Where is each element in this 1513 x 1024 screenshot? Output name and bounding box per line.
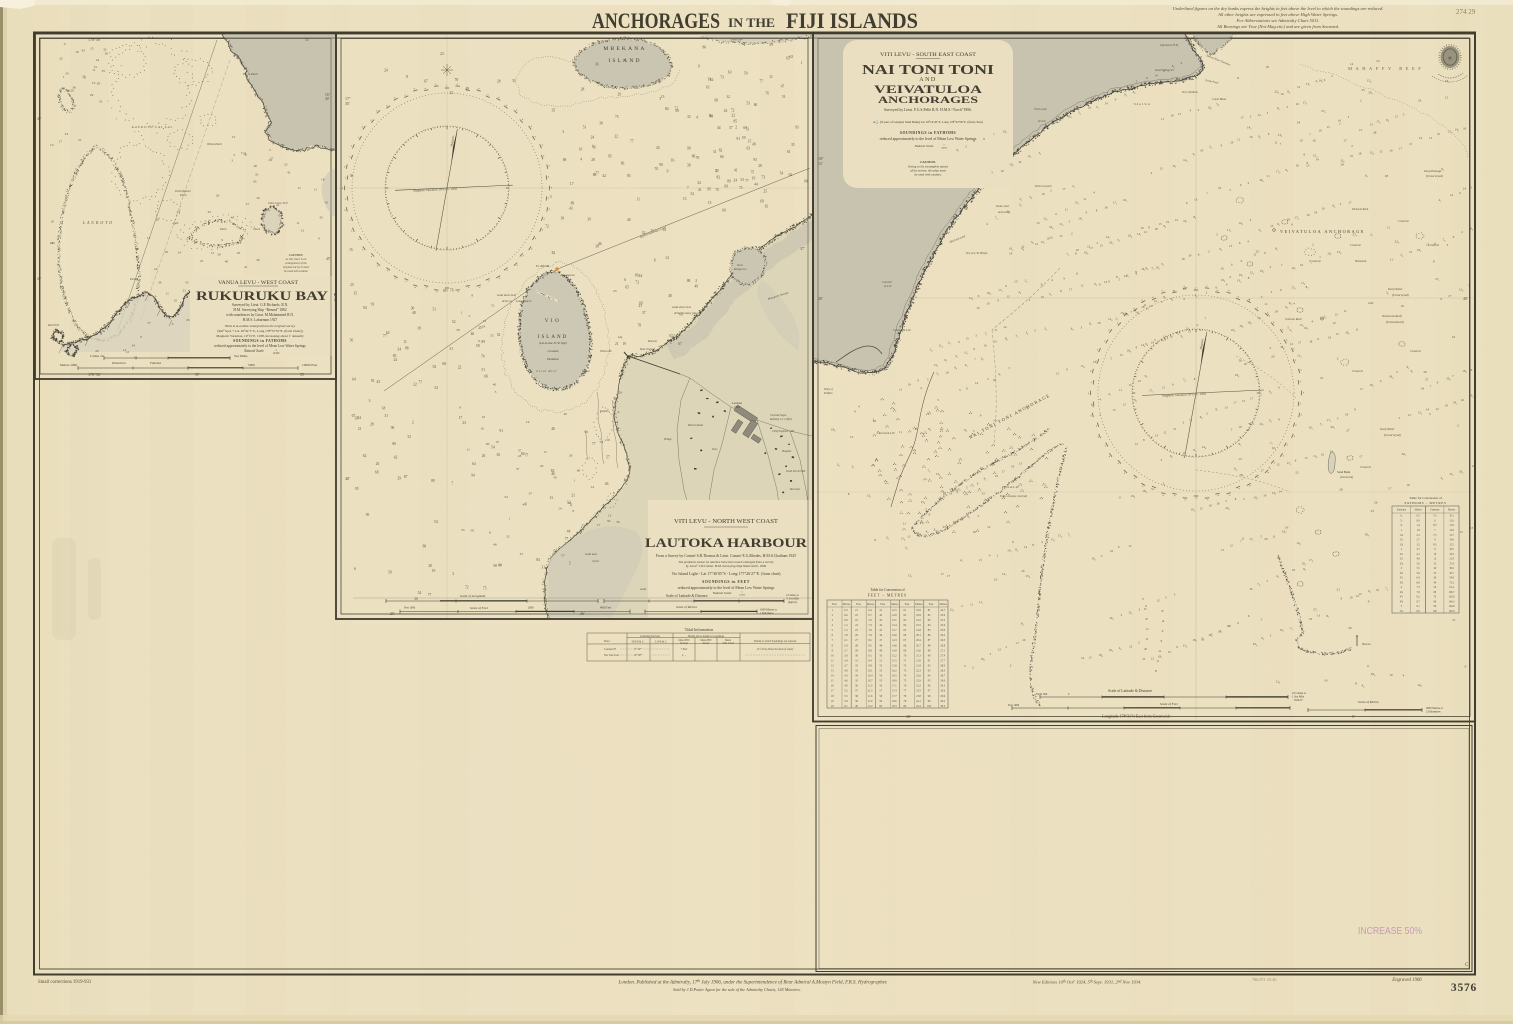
svg-text:10: 10	[1350, 154, 1354, 158]
svg-text:15.2: 15.2	[892, 654, 897, 657]
svg-text:Tidal Information: Tidal Information	[685, 627, 713, 632]
svg-text:17.4: 17.4	[892, 690, 897, 693]
svg-text:53: 53	[461, 528, 465, 532]
svg-text:25: 25	[490, 333, 494, 337]
svg-text:19: 19	[1166, 220, 1170, 224]
svg-text:Scale of Latitude & Distance: Scale of Latitude & Distance	[1108, 689, 1152, 693]
svg-text:LAUTOKA HARBOUR: LAUTOKA HARBOUR	[645, 536, 808, 550]
svg-text:20.7: 20.7	[916, 644, 921, 647]
svg-text:23: 23	[440, 52, 444, 56]
svg-text:13: 13	[1194, 197, 1198, 201]
svg-text:60: 60	[715, 99, 719, 103]
svg-text:12: 12	[1290, 342, 1294, 346]
svg-text:18: 18	[321, 177, 325, 181]
svg-text:2000: 2000	[528, 607, 534, 610]
svg-text:14: 14	[1124, 274, 1128, 278]
svg-text:17: 17	[1298, 341, 1302, 345]
svg-text:43: 43	[377, 380, 381, 384]
svg-text:17: 17	[1399, 147, 1403, 151]
svg-text:46: 46	[598, 242, 602, 246]
svg-text:13: 13	[899, 387, 903, 391]
svg-text:H.M.S. Laburnum 1927: H.M.S. Laburnum 1927	[243, 318, 278, 322]
svg-text:95: 95	[608, 155, 612, 159]
svg-text:34: 34	[397, 348, 401, 352]
svg-text:½: ½	[1400, 520, 1402, 523]
svg-text:44: 44	[66, 89, 70, 93]
svg-text:12: 12	[998, 648, 1002, 652]
svg-text:19: 19	[1285, 526, 1289, 530]
svg-text:15: 15	[1306, 164, 1310, 168]
svg-text:36: 36	[350, 174, 354, 178]
svg-text:5: 5	[659, 97, 661, 101]
svg-text:SOUNDINGS in FATHOMS: SOUNDINGS in FATHOMS	[900, 131, 956, 135]
svg-text:3: 3	[233, 153, 235, 157]
svg-text:42: 42	[394, 455, 398, 459]
svg-text:27: 27	[1425, 378, 1429, 382]
svg-text:9: 9	[459, 406, 461, 410]
svg-text:14: 14	[1105, 102, 1109, 106]
svg-text:27.1: 27.1	[940, 649, 945, 652]
svg-text:VANUA LEVU - WEST COAST: VANUA LEVU - WEST COAST	[218, 281, 298, 286]
svg-text:12: 12	[1276, 463, 1280, 467]
svg-text:13: 13	[1408, 413, 1412, 417]
svg-text:19: 19	[1376, 588, 1380, 592]
svg-text:16.5: 16.5	[892, 675, 897, 678]
svg-text:Barracks: Barracks	[790, 488, 800, 491]
svg-text:52: 52	[452, 320, 456, 324]
svg-text:(Unexamined): (Unexamined)	[1386, 320, 1404, 324]
svg-text:3½: 3½	[1400, 577, 1403, 580]
svg-text:41: 41	[276, 203, 280, 207]
svg-text:Mission Road: Mission Road	[687, 424, 704, 427]
svg-text:38: 38	[599, 121, 603, 125]
svg-text:10: 10	[51, 219, 55, 223]
svg-text:16: 16	[1249, 135, 1253, 139]
svg-text:12.8: 12.8	[1449, 529, 1454, 532]
svg-text:4¾: 4¾	[1400, 600, 1403, 603]
svg-text:11: 11	[1344, 309, 1347, 313]
svg-text:10.1: 10.1	[1449, 515, 1454, 518]
svg-text:18.9: 18.9	[916, 614, 921, 617]
svg-text:18: 18	[1275, 309, 1279, 313]
svg-text:26: 26	[482, 454, 486, 458]
svg-text:21.0: 21.0	[916, 649, 921, 652]
svg-text:60: 60	[486, 442, 490, 446]
svg-text:46: 46	[471, 332, 475, 336]
svg-text:37: 37	[516, 467, 520, 471]
svg-text:Metres: Metres	[843, 603, 850, 606]
svg-text:S: S	[1162, 629, 1164, 633]
svg-text:11: 11	[166, 292, 170, 296]
svg-text:95: 95	[366, 513, 370, 517]
svg-text:66: 66	[679, 313, 683, 317]
svg-text:London. Published at the Admir: London. Published at the Admiralty, 17th…	[618, 979, 888, 985]
svg-text:89: 89	[727, 180, 731, 184]
svg-text:31: 31	[384, 414, 388, 418]
svg-text:21: 21	[571, 494, 575, 498]
svg-text:24: 24	[733, 178, 737, 182]
svg-text:13: 13	[1019, 461, 1023, 465]
svg-text:Scale of Metres: Scale of Metres	[1358, 700, 1380, 704]
svg-text:Hospital: Hospital	[781, 450, 792, 453]
svg-text:56: 56	[616, 520, 620, 524]
svg-text:77: 77	[759, 80, 763, 84]
svg-text:All other heights are expresse: All other heights are expressed in feet …	[1217, 12, 1338, 17]
svg-text:Ldg: Ldg	[617, 336, 623, 339]
svg-text:Sea Miles: Sea Miles	[234, 354, 248, 358]
svg-text:24: 24	[591, 136, 595, 140]
svg-text:Pebbles: Pebbles	[823, 392, 833, 395]
svg-text:11: 11	[1162, 385, 1165, 389]
svg-text:13: 13	[683, 197, 687, 201]
svg-text:Store: Store	[712, 448, 718, 451]
svg-text:Work in A-outline enlarged fro: Work in A-outline enlarged from the orig…	[225, 324, 296, 328]
svg-text:29: 29	[90, 93, 94, 97]
svg-text:18: 18	[560, 216, 564, 220]
svg-text:13: 13	[211, 251, 215, 255]
svg-text:Sand Bank: Sand Bank	[1337, 470, 1351, 474]
svg-text:75: 75	[483, 586, 487, 590]
svg-text:55′: 55′	[300, 373, 305, 377]
svg-text:22.6: 22.6	[916, 675, 921, 678]
svg-text:109.7: 109.7	[1449, 591, 1456, 594]
svg-text:Plantation: Plantation	[546, 358, 559, 361]
svg-text:13: 13	[1120, 353, 1124, 357]
svg-text:12: 12	[1059, 234, 1063, 238]
svg-text:10: 10	[1389, 673, 1393, 677]
svg-text:15: 15	[1409, 250, 1413, 254]
svg-text:85: 85	[734, 119, 738, 123]
svg-text:MBEKANA: MBEKANA	[603, 46, 646, 52]
svg-text:15: 15	[1359, 128, 1363, 132]
svg-text:16: 16	[1141, 226, 1145, 230]
svg-text:44: 44	[287, 147, 291, 151]
svg-text:19: 19	[1011, 464, 1015, 468]
svg-text:7 Feet: 7 Feet	[681, 648, 688, 651]
svg-text:17: 17	[570, 182, 574, 186]
svg-text:15: 15	[1178, 112, 1182, 116]
svg-text:80: 80	[703, 45, 707, 49]
svg-text:26.8: 26.8	[940, 644, 945, 647]
svg-text:77: 77	[428, 593, 432, 597]
svg-text:19: 19	[943, 491, 947, 495]
svg-text:67: 67	[352, 414, 356, 418]
svg-text:26: 26	[1374, 500, 1378, 504]
svg-text:54: 54	[504, 495, 508, 499]
svg-text:43: 43	[253, 180, 257, 184]
svg-text:12: 12	[1332, 321, 1336, 325]
svg-text:41: 41	[287, 170, 291, 174]
svg-text:Boat Channel: Boat Channel	[640, 348, 655, 351]
svg-text:20: 20	[1348, 626, 1352, 630]
svg-text:5: 5	[569, 561, 571, 565]
svg-text:17: 17	[1388, 487, 1392, 491]
svg-text:9: 9	[57, 323, 59, 327]
svg-text:17: 17	[459, 416, 463, 420]
svg-text:13.1: 13.1	[892, 619, 897, 622]
svg-text:3¼: 3¼	[1400, 572, 1403, 575]
svg-text:17: 17	[1250, 397, 1254, 401]
svg-text:21: 21	[1452, 618, 1456, 622]
svg-text:43: 43	[57, 95, 61, 99]
svg-text:9: 9	[698, 65, 700, 69]
svg-text:11: 11	[296, 221, 300, 225]
svg-text:Feet: Feet	[856, 603, 861, 606]
svg-text:35′: 35′	[345, 101, 350, 106]
svg-text:8½: 8½	[1433, 543, 1436, 546]
svg-text:13: 13	[1238, 457, 1242, 461]
svg-text:1½: 1½	[1400, 539, 1403, 542]
svg-text:23: 23	[1418, 98, 1422, 102]
svg-text:10: 10	[983, 344, 987, 348]
svg-text:26: 26	[50, 241, 54, 245]
svg-text:MAHAFFY REEF: MAHAFFY REEF	[1348, 66, 1424, 71]
svg-text:63: 63	[728, 71, 732, 75]
svg-text:21.3: 21.3	[916, 654, 921, 657]
svg-text:66: 66	[484, 374, 488, 378]
svg-text:14: 14	[1350, 62, 1354, 66]
svg-text:Deep Water: Deep Water	[1379, 427, 1395, 431]
svg-text:15: 15	[1129, 383, 1133, 387]
svg-text:39: 39	[587, 218, 591, 222]
svg-text:H.W.F.& C.: H.W.F.& C.	[632, 641, 645, 644]
svg-text:14: 14	[590, 485, 594, 489]
svg-text:12: 12	[1151, 657, 1155, 661]
svg-text:12: 12	[483, 319, 487, 323]
svg-text:22: 22	[1295, 471, 1299, 475]
svg-text:11: 11	[1119, 388, 1122, 392]
svg-text:15: 15	[1100, 244, 1104, 248]
svg-text:43: 43	[569, 206, 573, 210]
svg-text:27: 27	[246, 202, 250, 206]
svg-text:Chief Engineer´s Ho: Chief Engineer´s Ho	[772, 430, 795, 433]
svg-text:Scale of Metres: Scale of Metres	[676, 605, 698, 609]
svg-text:15: 15	[232, 135, 236, 139]
svg-text:Panui Patch: Panui Patch	[242, 72, 258, 76]
svg-text:28: 28	[591, 158, 595, 162]
svg-text:72: 72	[545, 224, 549, 228]
svg-text:13.7: 13.7	[892, 629, 897, 632]
svg-text:14: 14	[1419, 136, 1423, 140]
svg-text:19: 19	[1018, 160, 1022, 164]
svg-text:Very Shallow: Very Shallow	[1182, 90, 1198, 94]
svg-text:68: 68	[563, 158, 567, 162]
svg-text:18: 18	[993, 378, 997, 382]
svg-text:18: 18	[1097, 321, 1101, 325]
svg-text:60: 60	[577, 469, 581, 473]
svg-text:18.3: 18.3	[1449, 553, 1454, 556]
svg-text:52: 52	[497, 333, 501, 337]
svg-text:Scale of Longitude: Scale of Longitude	[460, 594, 486, 598]
svg-text:27.7: 27.7	[940, 659, 945, 662]
svg-text:49: 49	[695, 284, 699, 288]
svg-text:9: 9	[478, 339, 480, 343]
svg-text:37: 37	[147, 321, 151, 325]
svg-text:77: 77	[565, 537, 569, 541]
svg-text:2¾: 2¾	[1400, 562, 1403, 565]
svg-text:76: 76	[765, 92, 769, 96]
svg-text:25: 25	[350, 283, 354, 287]
svg-text:55: 55	[655, 167, 659, 171]
svg-text:VIO: VIO	[545, 319, 561, 324]
svg-text:22: 22	[59, 57, 63, 61]
svg-text:59: 59	[607, 519, 611, 523]
svg-text:12: 12	[126, 350, 130, 354]
svg-text:13: 13	[1327, 125, 1331, 129]
svg-text:21.9: 21.9	[1449, 558, 1454, 561]
svg-text:at L.W.: at L.W.	[884, 285, 892, 288]
svg-text:1 Kilometre: 1 Kilometre	[760, 612, 774, 615]
svg-text:14: 14	[1154, 299, 1158, 303]
svg-text:91: 91	[736, 137, 740, 141]
svg-text:10: 10	[1060, 116, 1064, 120]
svg-text:43: 43	[540, 464, 544, 468]
svg-text:14: 14	[1355, 594, 1359, 598]
svg-text:16: 16	[1209, 504, 1213, 508]
svg-text:Refining Co´s Office: Refining Co´s Office	[769, 418, 793, 421]
svg-text:89: 89	[571, 201, 575, 205]
svg-text:11: 11	[1274, 140, 1278, 144]
svg-text:90: 90	[804, 180, 808, 184]
svg-text:28: 28	[758, 164, 762, 168]
svg-text:17.1: 17.1	[892, 685, 897, 688]
svg-text:20: 20	[216, 193, 220, 197]
svg-text:12: 12	[1129, 645, 1133, 649]
svg-text:S: S	[1160, 639, 1162, 643]
svg-text:5: 5	[469, 314, 471, 318]
svg-text:41: 41	[244, 265, 248, 269]
svg-text:16: 16	[1110, 549, 1114, 553]
svg-text:13: 13	[1225, 405, 1229, 409]
svg-text:23: 23	[462, 421, 466, 425]
svg-text:40: 40	[225, 259, 229, 263]
svg-text:Deep Passage: Deep Passage	[1423, 169, 1442, 173]
svg-text:1¼: 1¼	[1400, 534, 1403, 537]
svg-text:60: 60	[722, 209, 726, 213]
svg-text:36: 36	[595, 62, 599, 66]
svg-text:11: 11	[1241, 537, 1245, 541]
svg-text:94: 94	[709, 115, 713, 119]
svg-text:43: 43	[656, 146, 660, 150]
svg-text:13: 13	[608, 514, 612, 518]
svg-text:28: 28	[1373, 130, 1377, 134]
svg-text:be used with caution: be used with caution	[284, 269, 308, 273]
svg-text:18: 18	[1265, 65, 1269, 69]
svg-text:32: 32	[697, 181, 701, 185]
svg-text:11: 11	[1433, 241, 1436, 245]
svg-text:14: 14	[949, 492, 953, 496]
svg-text:83: 83	[627, 174, 631, 178]
svg-text:with soundences by Lieut. M.Mo: with soundences by Lieut. M.Mohammed R.N…	[226, 313, 294, 317]
svg-text:35: 35	[231, 216, 235, 220]
svg-text:12: 12	[1128, 544, 1132, 548]
svg-text:Small Village Pt: Small Village Pt	[1155, 68, 1174, 72]
svg-text:20: 20	[1271, 354, 1275, 358]
svg-text:40: 40	[256, 258, 260, 262]
svg-text:17: 17	[597, 523, 601, 527]
svg-text:18: 18	[1292, 568, 1296, 572]
svg-text:13: 13	[1270, 224, 1274, 228]
svg-text:11: 11	[939, 498, 942, 502]
svg-text:29: 29	[1341, 162, 1345, 166]
svg-text:L.W.F.& C.: L.W.F.& C.	[655, 641, 668, 644]
svg-text:47: 47	[496, 440, 500, 444]
svg-text:62: 62	[790, 55, 794, 59]
svg-text:17: 17	[979, 466, 983, 470]
svg-text:90: 90	[687, 147, 691, 151]
svg-text:Deep Water: Deep Water	[1387, 287, 1403, 291]
svg-text:11.6: 11.6	[868, 695, 873, 698]
svg-text:40: 40	[172, 221, 176, 225]
svg-text:16: 16	[1041, 295, 1045, 299]
svg-text:61: 61	[706, 86, 710, 90]
svg-text:73.2: 73.2	[1449, 581, 1454, 584]
svg-text:1: 1	[461, 311, 463, 315]
svg-text:18: 18	[236, 251, 240, 255]
svg-text:13: 13	[1229, 244, 1233, 248]
svg-text:27.4: 27.4	[1449, 562, 1454, 565]
svg-text:16: 16	[1389, 148, 1393, 152]
svg-text:3: 3	[550, 195, 552, 199]
svg-text:89: 89	[481, 340, 485, 344]
svg-text:11: 11	[1356, 327, 1359, 331]
svg-text:22: 22	[175, 221, 179, 225]
svg-text:RUKURUKU BAY: RUKURUKU BAY	[196, 289, 328, 303]
svg-text:Natural Scale: Natural Scale	[243, 349, 264, 353]
svg-text:14: 14	[1463, 186, 1467, 190]
svg-text:Beacons: Beacons	[648, 340, 657, 343]
svg-text:10: 10	[1324, 679, 1328, 683]
svg-text:18250: 18250	[941, 147, 948, 150]
svg-text:13: 13	[1221, 548, 1225, 552]
svg-text:10: 10	[1322, 206, 1326, 210]
svg-text:12: 12	[1436, 407, 1440, 411]
svg-text:16: 16	[1312, 139, 1316, 143]
svg-text:15.5: 15.5	[892, 659, 897, 662]
svg-text:52: 52	[435, 386, 439, 390]
svg-text:16.2: 16.2	[892, 670, 897, 673]
svg-text:22: 22	[154, 267, 158, 271]
svg-text:12: 12	[1168, 650, 1172, 654]
svg-text:70: 70	[715, 188, 719, 192]
svg-text:23.2: 23.2	[916, 685, 921, 688]
svg-text:52: 52	[600, 440, 604, 444]
svg-text:13: 13	[1036, 221, 1040, 225]
svg-text:NAI TONI TONI: NAI TONI TONI	[862, 62, 994, 77]
svg-text:VITI LEVU - SOUTH EAST COAST: VITI LEVU - SOUTH EAST COAST	[880, 52, 977, 58]
svg-text:13: 13	[549, 496, 553, 500]
svg-text:69: 69	[724, 184, 728, 188]
svg-text:26.2: 26.2	[940, 634, 945, 637]
svg-text:ANCHORAGES: ANCHORAGES	[878, 96, 978, 106]
svg-text:26: 26	[414, 597, 418, 601]
svg-text:25.9: 25.9	[940, 629, 945, 632]
svg-text:19: 19	[92, 81, 96, 85]
svg-text:13: 13	[981, 492, 985, 496]
svg-text:24: 24	[668, 339, 672, 343]
svg-text:65: 65	[625, 286, 629, 290]
svg-text:2: 2	[735, 125, 737, 129]
svg-text:39: 39	[243, 151, 247, 155]
svg-text:Fathoms: Fathoms	[1397, 509, 1406, 512]
svg-text:19: 19	[1230, 141, 1234, 145]
svg-text:13: 13	[1155, 434, 1159, 438]
svg-text:Fathoms: Fathoms	[1430, 509, 1439, 512]
svg-text:Feet: Feet	[880, 603, 885, 606]
svg-text:10: 10	[1239, 425, 1243, 429]
svg-text:Hummock: Hummock	[1354, 260, 1367, 263]
svg-text:51: 51	[481, 368, 485, 372]
